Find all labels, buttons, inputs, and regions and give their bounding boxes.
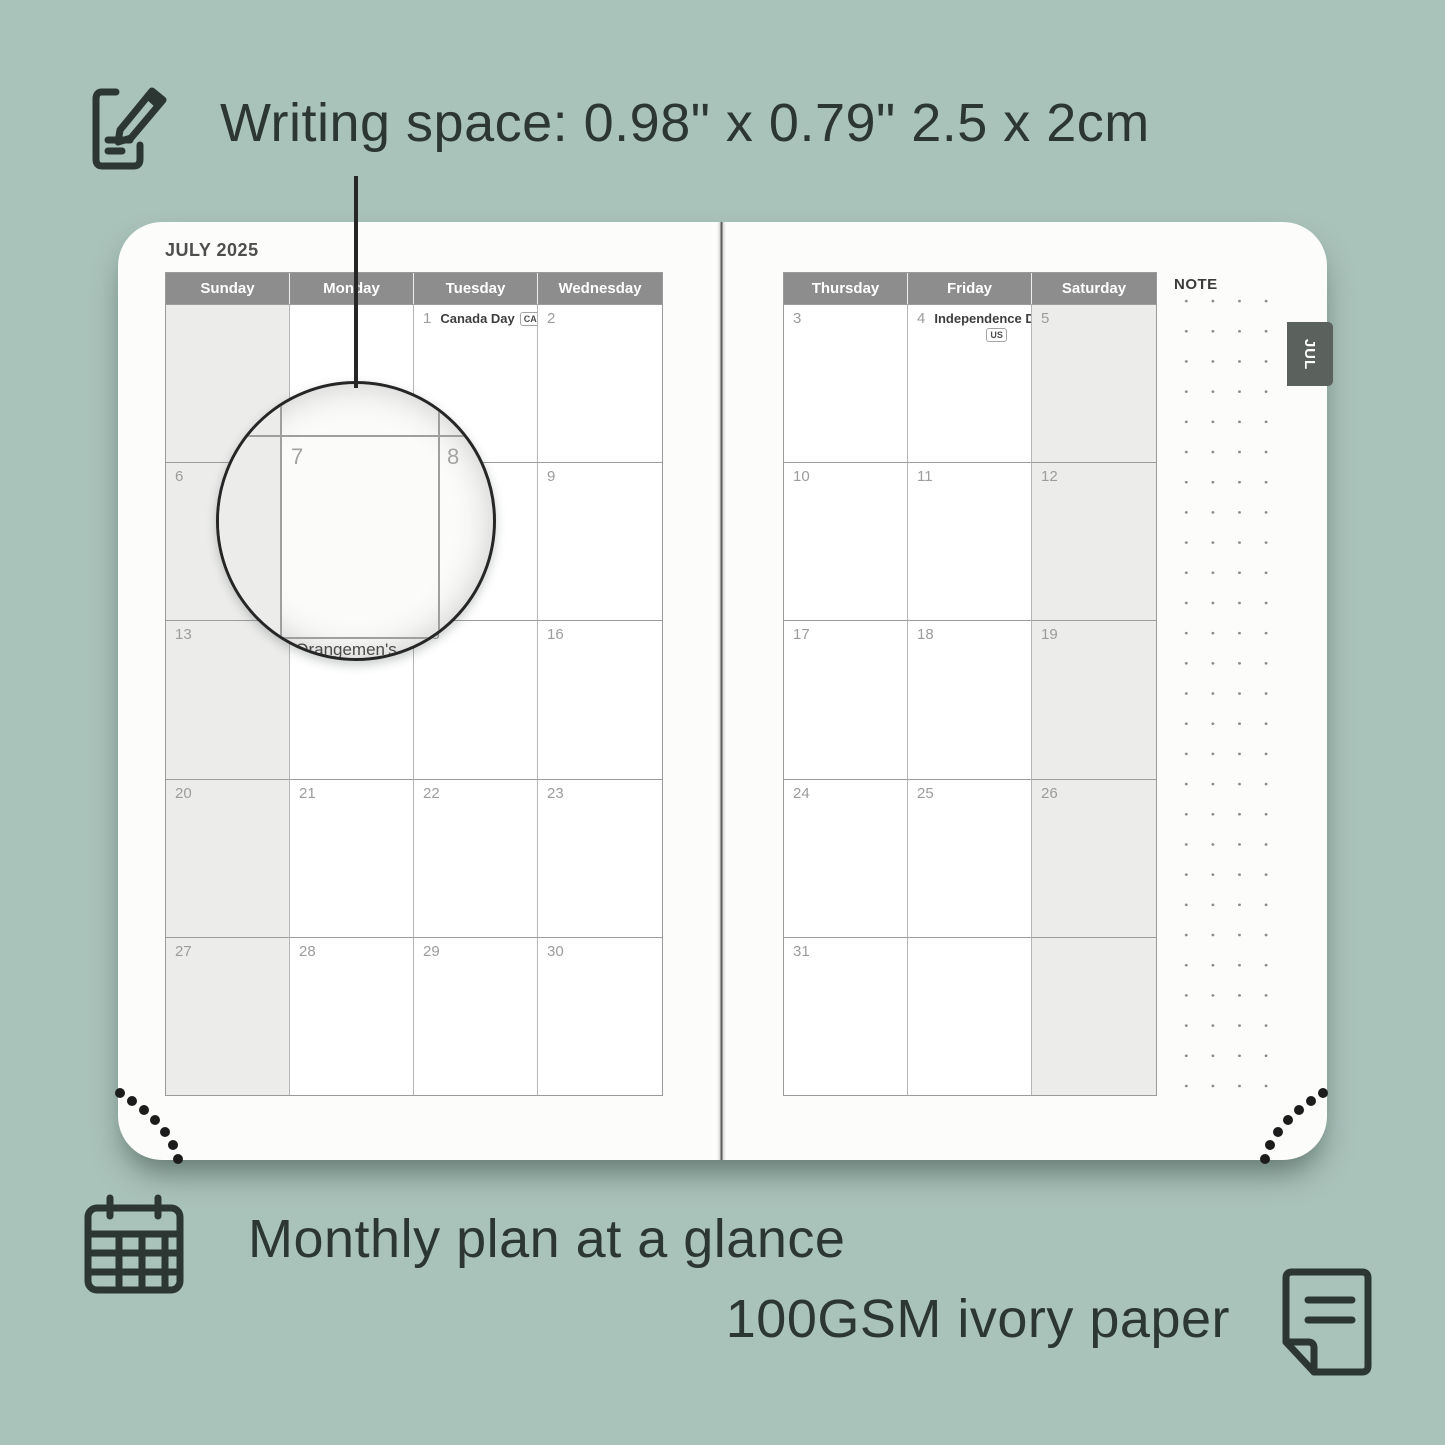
- calendar-right-page: Thursday Friday Saturday 3 4 Independenc…: [783, 272, 1157, 1096]
- paper-label: 100GSM ivory paper: [726, 1288, 1230, 1350]
- calendar-cell: 31: [784, 937, 908, 1095]
- calendar-cell: 28: [290, 937, 414, 1095]
- day-header: Wednesday: [538, 273, 662, 304]
- calendar-cell: 10: [784, 462, 908, 620]
- day-header: Monday: [290, 273, 414, 304]
- calendar-cell: 29: [414, 937, 538, 1095]
- calendar-cell-holiday: 4 Independence DayUS: [908, 304, 1032, 462]
- calendar-grid-icon: [80, 1194, 188, 1303]
- country-badge: US: [986, 328, 1007, 342]
- magnified-gridline: [280, 384, 282, 658]
- calendar-cell: 11: [908, 462, 1032, 620]
- month-tab-label: JUL: [1302, 338, 1319, 369]
- corner-stitch-dots-left: [114, 1080, 186, 1166]
- calendar-cell: 9: [538, 462, 662, 620]
- calendar-cell: 5: [1032, 304, 1156, 462]
- pencil-note-icon: [86, 78, 172, 179]
- calendar-cell: 26: [1032, 779, 1156, 937]
- country-badge: CA: [520, 312, 538, 326]
- holiday-label: Independence DayUS: [934, 311, 1032, 342]
- magnified-day-number: 7: [291, 444, 303, 470]
- paper-sheet-icon: [1274, 1268, 1374, 1385]
- magnified-day-number: 8: [447, 444, 459, 470]
- calendar-cell: 30: [538, 937, 662, 1095]
- note-dot-grid: [1169, 282, 1289, 1100]
- calendar-cell: 25: [908, 779, 1032, 937]
- month-tab[interactable]: JUL: [1287, 322, 1333, 386]
- calendar-cell: 20: [166, 779, 290, 937]
- planner-spine: [717, 222, 726, 1160]
- magnified-gridline: [219, 637, 493, 639]
- magnifier-circle: 7 8 Orangemen's: [216, 381, 496, 661]
- note-label: NOTE: [1172, 274, 1226, 295]
- day-number: 4: [917, 310, 925, 327]
- calendar-cell: 22: [414, 779, 538, 937]
- calendar-cell: 3: [784, 304, 908, 462]
- corner-stitch-dots-right: [1257, 1080, 1329, 1166]
- writing-space-label: Writing space: 0.98" x 0.79" 2.5 x 2cm: [220, 92, 1150, 154]
- day-number: 1: [423, 310, 431, 327]
- magnified-holiday-text: Orangemen's: [219, 640, 473, 660]
- calendar-cell: 21: [290, 779, 414, 937]
- magnified-shaded-column: [219, 384, 280, 658]
- day-header: Tuesday: [414, 273, 538, 304]
- calendar-cell: 27: [166, 937, 290, 1095]
- callout-line: [354, 176, 358, 388]
- product-image: Writing space: 0.98" x 0.79" 2.5 x 2cm J…: [0, 0, 1445, 1445]
- calendar-cell: 12: [1032, 462, 1156, 620]
- calendar-cell: 17: [784, 620, 908, 778]
- calendar-cell: 18: [908, 620, 1032, 778]
- calendar-cell: 16: [538, 620, 662, 778]
- calendar-cell: [908, 937, 1032, 1095]
- planner-spread: JULY 2025 Sunday Monday Tuesday Wednesda…: [118, 222, 1327, 1160]
- holiday-label: Canada DayCA: [440, 311, 538, 326]
- day-header: Thursday: [784, 273, 908, 304]
- magnified-gridline: [438, 384, 440, 658]
- calendar-cell: 24: [784, 779, 908, 937]
- calendar-cell: 2: [538, 304, 662, 462]
- calendar-cell: 23: [538, 779, 662, 937]
- magnified-gridline: [219, 435, 493, 437]
- calendar-cell: 19: [1032, 620, 1156, 778]
- day-header: Saturday: [1032, 273, 1156, 304]
- month-title: JULY 2025: [165, 240, 259, 261]
- day-header: Sunday: [166, 273, 290, 304]
- day-header: Friday: [908, 273, 1032, 304]
- calendar-cell: [1032, 937, 1156, 1095]
- monthly-plan-label: Monthly plan at a glance: [248, 1208, 845, 1270]
